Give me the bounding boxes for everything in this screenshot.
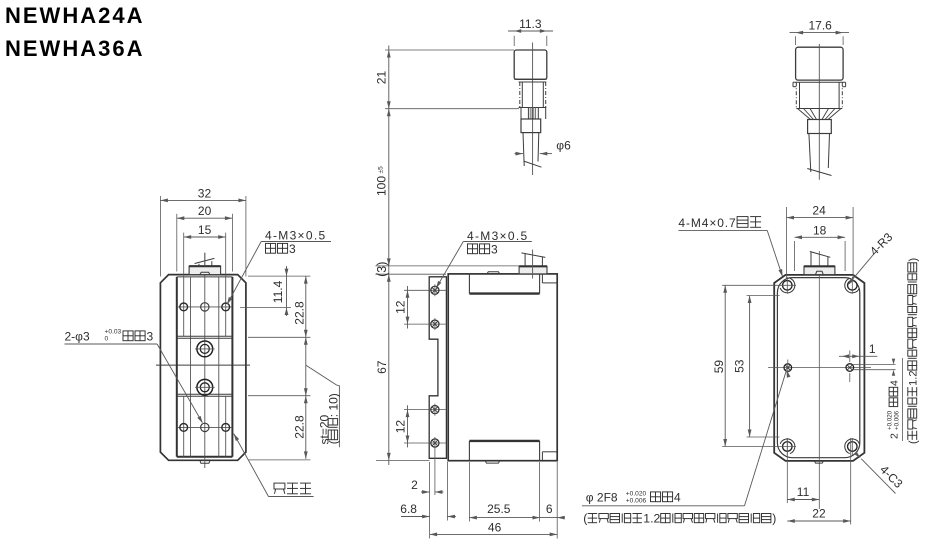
svg-text:0: 0 xyxy=(105,336,109,343)
svg-text:1.2: 1.2 xyxy=(643,512,660,526)
svg-text:22.8: 22.8 xyxy=(292,415,306,439)
svg-text:): ) xyxy=(908,258,920,262)
svg-text:20: 20 xyxy=(198,204,212,218)
svg-text:4: 4 xyxy=(674,491,681,505)
svg-text:2: 2 xyxy=(411,478,418,492)
svg-text:46: 46 xyxy=(488,521,502,535)
svg-text:25.5: 25.5 xyxy=(487,502,511,516)
svg-text:+0.020: +0.020 xyxy=(626,491,647,498)
svg-text:3: 3 xyxy=(289,242,296,256)
svg-text:6.8: 6.8 xyxy=(400,502,417,516)
svg-text:(3): (3) xyxy=(375,262,389,277)
svg-text:±5: ±5 xyxy=(378,166,385,174)
svg-text:NEWHA36A: NEWHA36A xyxy=(5,36,144,61)
svg-text:2: 2 xyxy=(889,433,901,439)
svg-text:3: 3 xyxy=(491,243,498,257)
svg-text:15: 15 xyxy=(198,223,212,237)
svg-text:11.3: 11.3 xyxy=(519,17,542,31)
svg-text:22.8: 22.8 xyxy=(292,301,306,325)
svg-text:2-φ3: 2-φ3 xyxy=(65,330,90,344)
svg-text:4: 4 xyxy=(889,380,901,386)
svg-text:+0.020: +0.020 xyxy=(887,410,894,430)
svg-text:+0.006: +0.006 xyxy=(626,498,647,505)
svg-text:(: ( xyxy=(583,512,587,526)
svg-text:100: 100 xyxy=(374,176,388,196)
svg-text:(: ( xyxy=(908,440,920,444)
svg-text:: 10): : 10) xyxy=(326,393,340,417)
svg-text:1.2: 1.2 xyxy=(908,371,920,386)
svg-text:φ 2F8: φ 2F8 xyxy=(586,491,618,505)
svg-text:φ6: φ6 xyxy=(556,139,571,153)
svg-text:59: 59 xyxy=(712,360,726,374)
svg-text:4-M3×0.5: 4-M3×0.5 xyxy=(265,229,326,243)
svg-text:17.6: 17.6 xyxy=(809,18,833,32)
svg-text:22: 22 xyxy=(812,507,826,521)
svg-text:53: 53 xyxy=(733,359,747,373)
svg-text:4-M4×0.7: 4-M4×0.7 xyxy=(678,216,736,230)
svg-text:18: 18 xyxy=(813,223,827,237)
svg-text:3: 3 xyxy=(147,330,154,344)
svg-text:4-M3×0.5: 4-M3×0.5 xyxy=(467,229,528,243)
svg-text:NEWHA24A: NEWHA24A xyxy=(5,3,144,28)
svg-text:21: 21 xyxy=(374,71,388,85)
svg-text:32: 32 xyxy=(198,186,212,200)
svg-text:12: 12 xyxy=(393,420,407,434)
svg-text:11.4: 11.4 xyxy=(271,280,285,303)
svg-text:12: 12 xyxy=(393,300,407,314)
svg-text:): ) xyxy=(772,512,776,526)
svg-text:1: 1 xyxy=(869,342,876,356)
svg-text:6: 6 xyxy=(546,502,553,516)
svg-text:+0.006: +0.006 xyxy=(894,410,901,430)
svg-text:67: 67 xyxy=(375,360,389,374)
svg-text:24: 24 xyxy=(812,204,826,218)
svg-text:11: 11 xyxy=(797,485,810,499)
svg-text:(: ( xyxy=(326,440,340,444)
svg-text:+0.03: +0.03 xyxy=(105,329,122,336)
